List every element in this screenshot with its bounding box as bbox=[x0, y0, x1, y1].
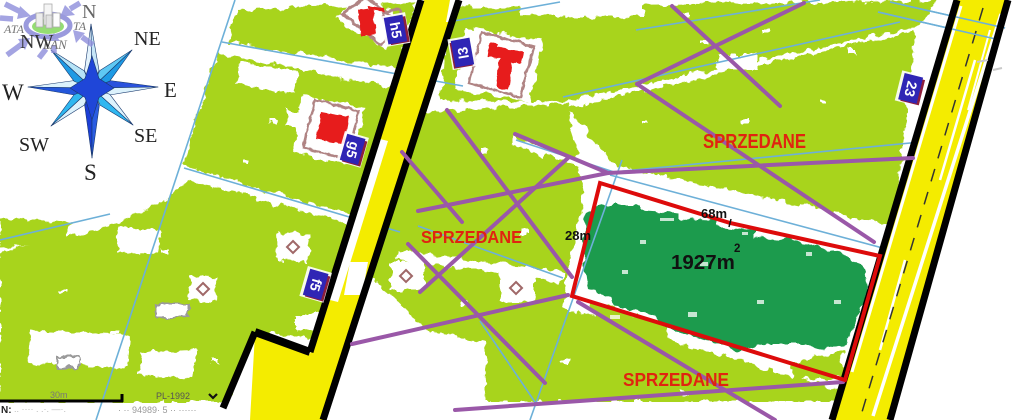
svg-text:68m: 68m bbox=[701, 206, 727, 221]
svg-text:1927m: 1927m bbox=[671, 251, 735, 274]
svg-text:2: 2 bbox=[734, 243, 740, 255]
svg-text:SPRZEDANE: SPRZEDANE bbox=[623, 369, 729, 390]
svg-text:30m: 30m bbox=[50, 390, 68, 400]
svg-text:· ·· 94989· 5 ·· ······: · ·· 94989· 5 ·· ······ bbox=[118, 405, 197, 415]
svg-text:.. ···· . .·. —·.: .. ···· . .·. —·. bbox=[14, 404, 66, 414]
svg-text:E: E bbox=[164, 78, 177, 102]
svg-text:TA: TA bbox=[73, 19, 87, 33]
svg-text:h5: h5 bbox=[387, 21, 406, 40]
svg-text:S: S bbox=[84, 160, 97, 185]
svg-text:28m: 28m bbox=[565, 228, 591, 243]
svg-text:SE: SE bbox=[134, 125, 157, 147]
svg-text:SPRZEDANE: SPRZEDANE bbox=[703, 130, 806, 153]
svg-text:W: W bbox=[2, 80, 24, 105]
svg-text:PL-1992: PL-1992 bbox=[156, 391, 190, 401]
svg-text:N:: N: bbox=[1, 405, 12, 416]
svg-text:SW: SW bbox=[19, 134, 49, 156]
svg-text:NW: NW bbox=[20, 31, 53, 53]
svg-text:NE: NE bbox=[134, 28, 161, 50]
svg-text:SPRZEDANE: SPRZEDANE bbox=[421, 227, 522, 247]
